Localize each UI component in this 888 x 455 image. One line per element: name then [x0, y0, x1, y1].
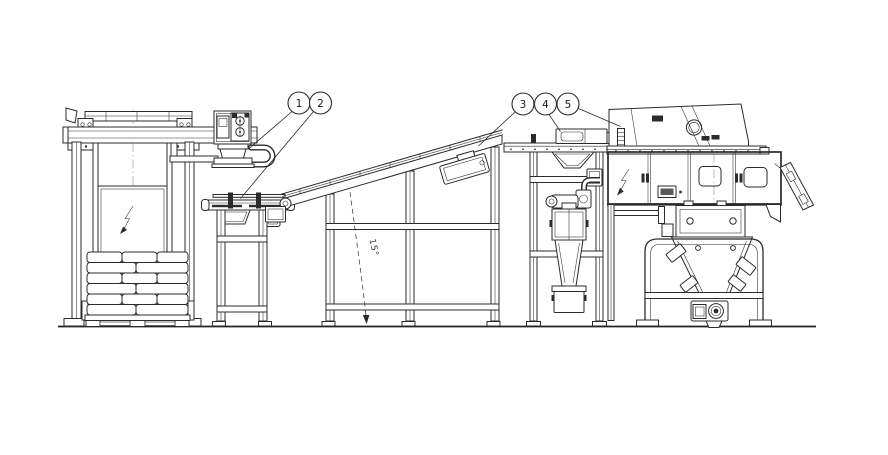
dimension-arc [350, 192, 366, 316]
handle-tube [249, 148, 273, 165]
callout-3: 3 [479, 93, 535, 146]
control-cabinet [607, 152, 782, 205]
table-legs [213, 210, 272, 326]
door-window [699, 167, 721, 187]
top-housing [609, 104, 749, 146]
dust-bin [552, 286, 587, 313]
rail-trolley-right [177, 119, 192, 128]
discharge-hopper [676, 201, 745, 237]
callout-1-label: 1 [296, 98, 303, 110]
electrical-flash-icon [617, 169, 629, 196]
inclined-conveyor [266, 130, 503, 326]
callout-5-label: 5 [565, 99, 572, 111]
table-top-rail [213, 195, 285, 198]
drop-funnel [552, 152, 594, 168]
safety-panel [98, 186, 167, 257]
door-handle [740, 174, 743, 183]
dust-collection-unit [527, 152, 607, 326]
door-window [744, 168, 767, 188]
gantry-column-left [64, 142, 84, 326]
control-panel-display [658, 186, 682, 198]
chute-support [766, 205, 781, 223]
discharge-spigot [706, 321, 722, 328]
door-handle [642, 174, 645, 183]
belt-post-left [531, 134, 536, 144]
callout-4-label: 4 [542, 99, 549, 111]
machine-left-column [608, 205, 673, 321]
transfer-conveyor-device [556, 129, 614, 144]
callout-4: 4 [535, 93, 561, 132]
filter-cone [555, 240, 583, 286]
filter-housing [550, 203, 589, 240]
angle-label: 15° [367, 238, 381, 258]
housing-label [652, 116, 663, 122]
door-handle [735, 174, 738, 183]
beam-clamp-plates [68, 143, 199, 150]
rail-trolley-left [78, 119, 93, 128]
drawing-canvas: 15° [0, 0, 888, 455]
tail-guard [266, 207, 286, 223]
rotary-valve [691, 301, 728, 328]
engineering-drawing: 15° [0, 0, 888, 455]
bag-stack [87, 252, 188, 315]
bag-opening-machine [607, 104, 814, 328]
brush-curtain [618, 129, 625, 147]
bag-discharge-chute [766, 163, 814, 223]
callout-1: 1 [249, 92, 310, 149]
lifter-body [214, 111, 251, 144]
dimension-arrow [363, 315, 370, 324]
belt-band [504, 143, 615, 152]
pallet [85, 315, 190, 327]
door-handle [646, 174, 649, 183]
callout-3-label: 3 [520, 99, 527, 111]
callout-2-label: 2 [317, 98, 324, 110]
